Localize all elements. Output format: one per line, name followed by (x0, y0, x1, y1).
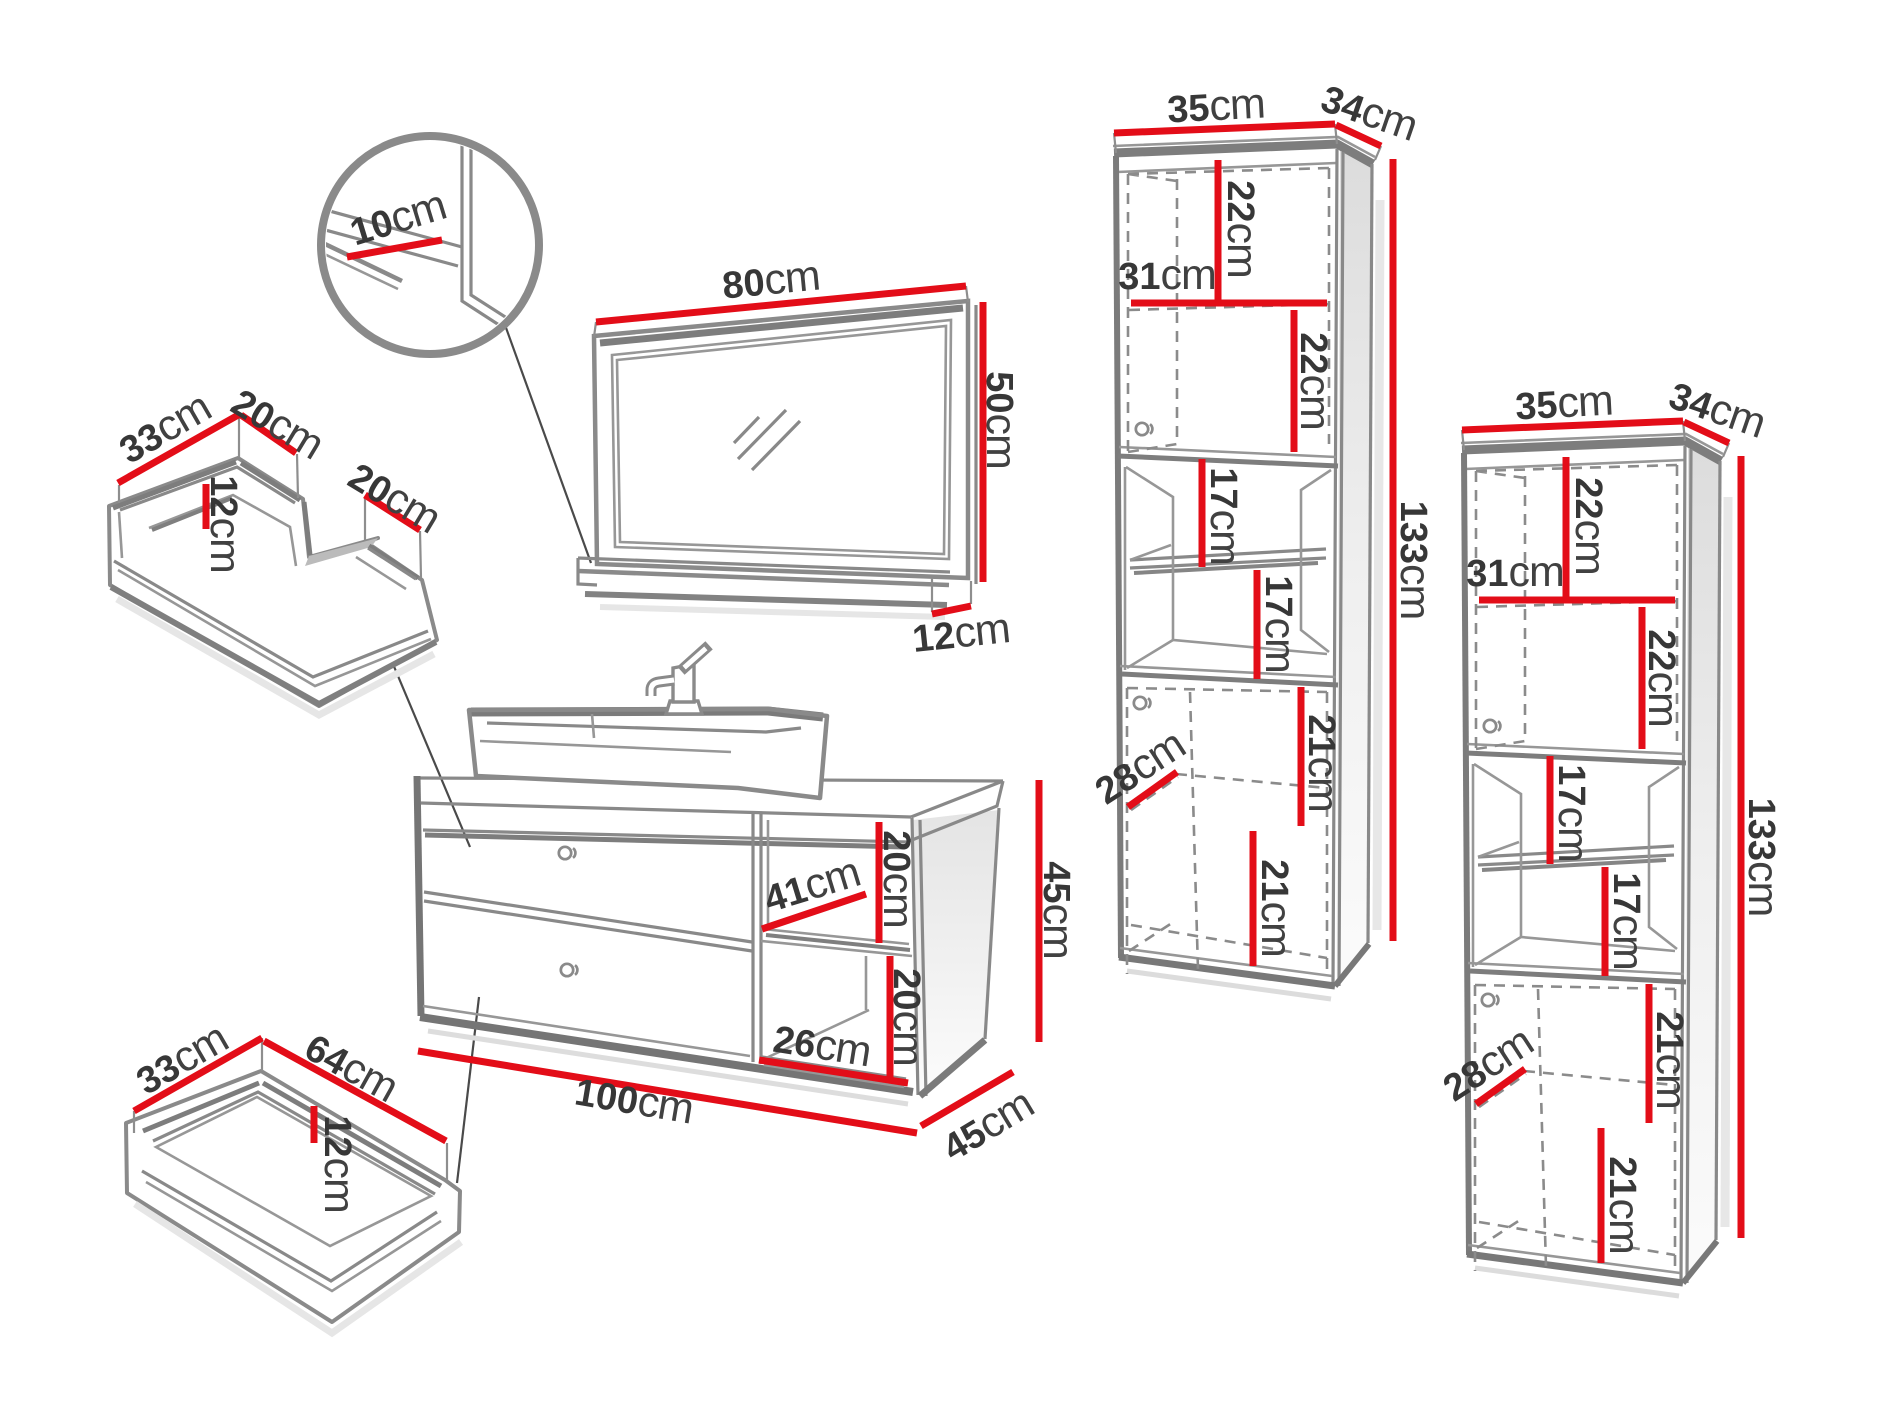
svg-text:22cm: 22cm (1218, 180, 1266, 278)
svg-text:22cm: 22cm (1291, 332, 1339, 430)
svg-text:21cm: 21cm (1299, 714, 1347, 812)
svg-text:133cm: 133cm (1391, 501, 1439, 620)
svg-text:45cm: 45cm (1034, 861, 1082, 959)
svg-text:17cm: 17cm (1256, 575, 1304, 673)
svg-text:17cm: 17cm (1201, 467, 1249, 565)
svg-text:20cm: 20cm (884, 968, 932, 1066)
svg-text:12cm: 12cm (201, 475, 249, 573)
svg-text:20cm: 20cm (874, 830, 922, 928)
svg-text:12cm: 12cm (315, 1115, 363, 1213)
svg-text:21cm: 21cm (1252, 859, 1300, 957)
svg-text:50cm: 50cm (977, 371, 1025, 469)
svg-text:31cm: 31cm (1118, 251, 1216, 299)
